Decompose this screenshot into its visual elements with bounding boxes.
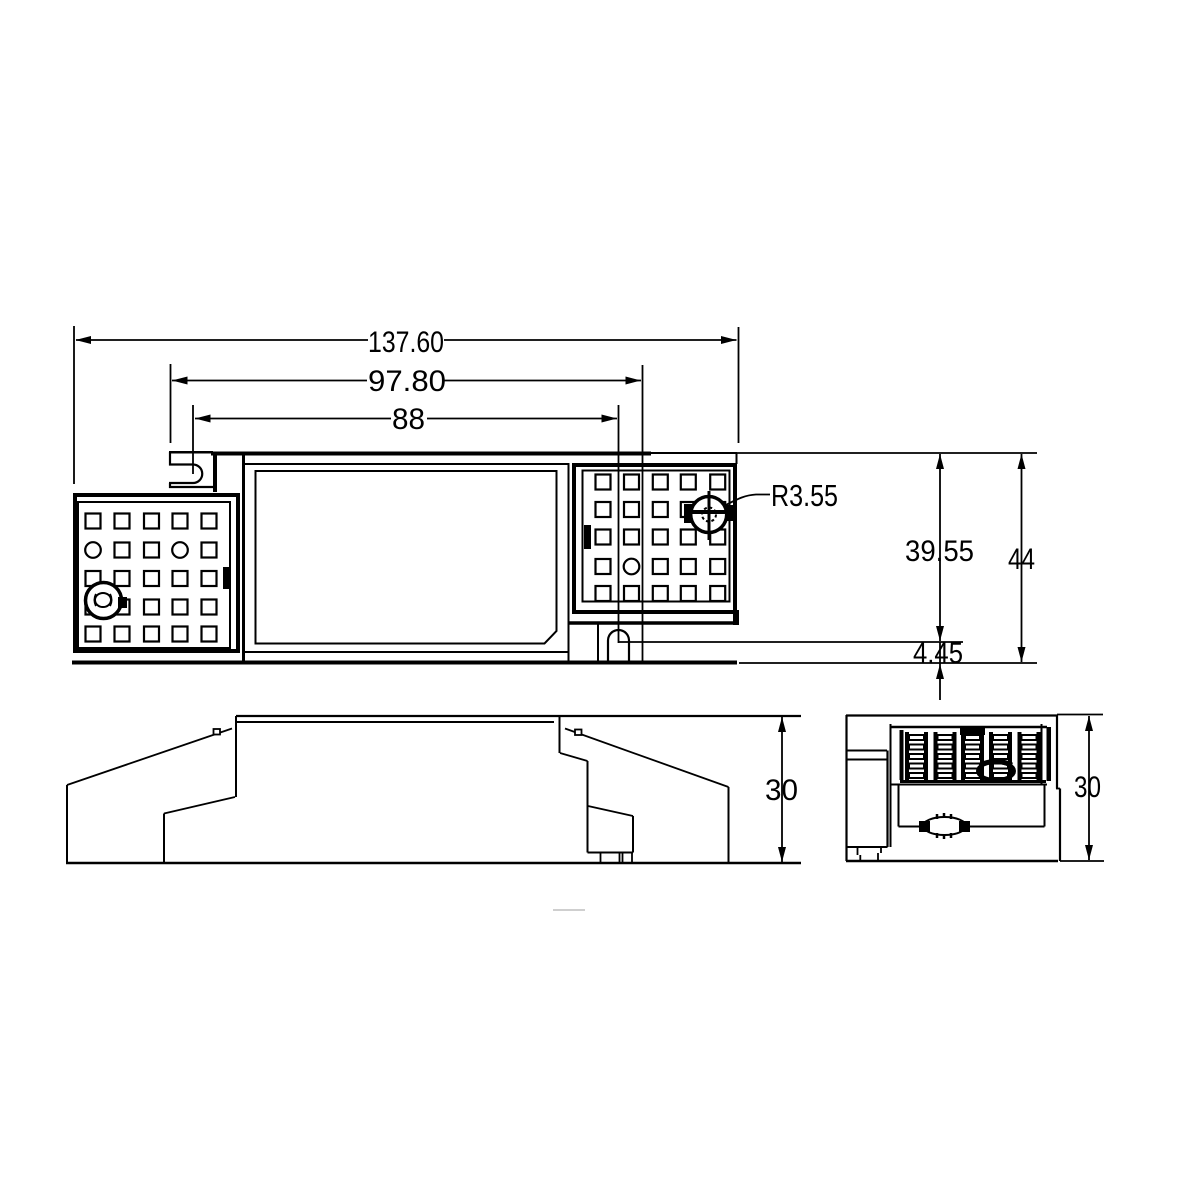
svg-text:30: 30 — [765, 774, 798, 807]
svg-text:30: 30 — [1074, 771, 1101, 804]
svg-text:R3.55: R3.55 — [771, 478, 838, 513]
svg-text:97.80: 97.80 — [368, 365, 446, 398]
svg-text:4.45: 4.45 — [913, 637, 963, 670]
svg-text:39.55: 39.55 — [905, 535, 974, 568]
svg-text:44: 44 — [1008, 543, 1035, 576]
svg-text:88: 88 — [392, 403, 425, 436]
svg-text:137.60: 137.60 — [368, 326, 444, 359]
